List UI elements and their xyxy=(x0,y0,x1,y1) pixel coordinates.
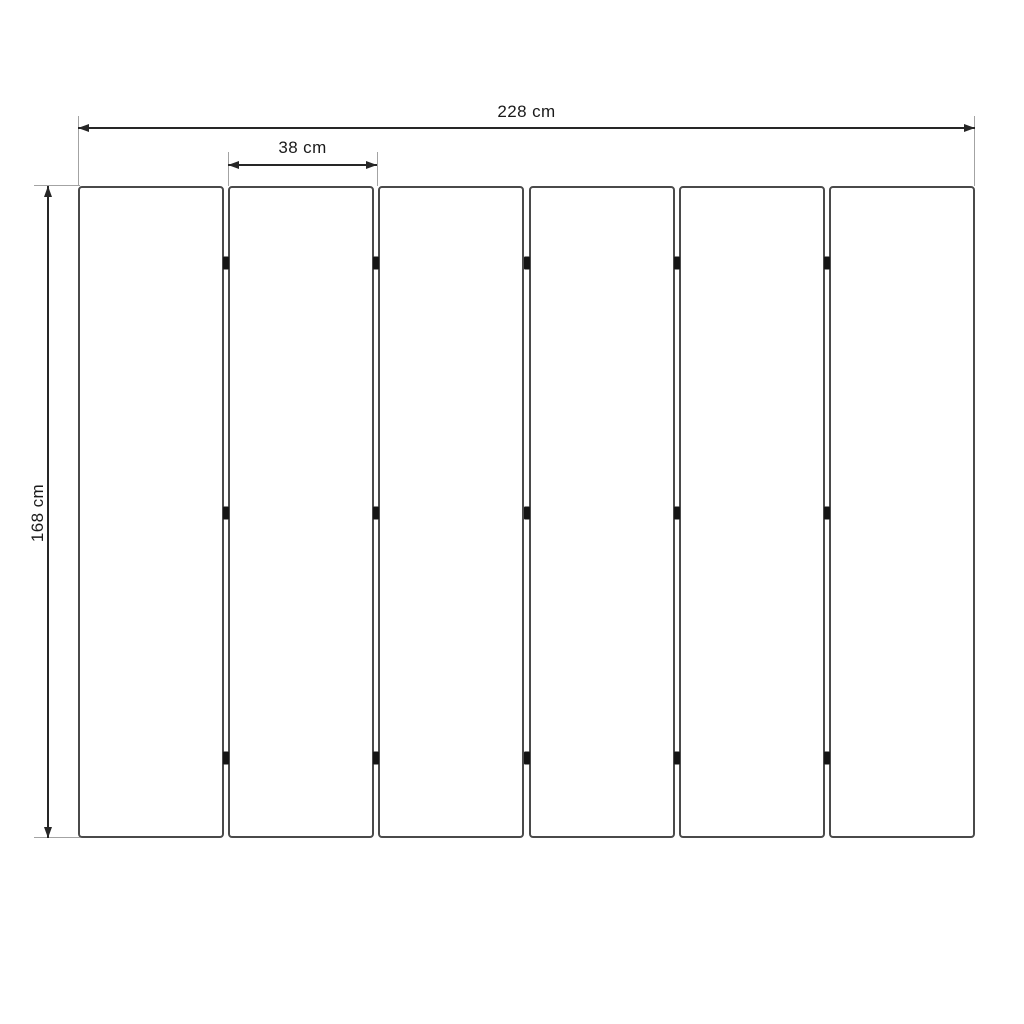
hinge xyxy=(824,507,830,520)
hinge xyxy=(373,752,379,765)
arrowhead-right-icon xyxy=(366,161,377,169)
hinge xyxy=(223,257,229,270)
hinge xyxy=(524,257,530,270)
dimension-label-panel-width: 38 cm xyxy=(228,138,377,158)
hinge xyxy=(674,257,680,270)
arrowhead-right-icon xyxy=(964,124,975,132)
hinge xyxy=(824,257,830,270)
dimension-label-height: 168 cm xyxy=(28,484,48,542)
dimension-label-total-width: 228 cm xyxy=(78,102,975,122)
dimension-line xyxy=(228,164,377,166)
panel-4 xyxy=(529,186,675,838)
panel-6 xyxy=(829,186,975,838)
hinge xyxy=(524,752,530,765)
panel-1 xyxy=(78,186,224,838)
arrowhead-left-icon xyxy=(78,124,89,132)
hinge xyxy=(373,507,379,520)
panel-2 xyxy=(228,186,374,838)
hinge xyxy=(824,752,830,765)
extension-line xyxy=(377,152,378,186)
hinge xyxy=(674,507,680,520)
arrowhead-left-icon xyxy=(228,161,239,169)
hinge xyxy=(524,507,530,520)
hinge xyxy=(223,507,229,520)
hinge xyxy=(223,752,229,765)
extension-line xyxy=(34,837,80,838)
hinge xyxy=(373,257,379,270)
panel-3 xyxy=(378,186,524,838)
arrowhead-up-icon xyxy=(44,186,52,197)
panel-5 xyxy=(679,186,825,838)
hinge xyxy=(674,752,680,765)
extension-line xyxy=(34,185,80,186)
drawing-canvas: 228 cm 38 cm 168 cm xyxy=(0,0,1024,1024)
dimension-line xyxy=(78,127,975,129)
arrowhead-down-icon xyxy=(44,827,52,838)
